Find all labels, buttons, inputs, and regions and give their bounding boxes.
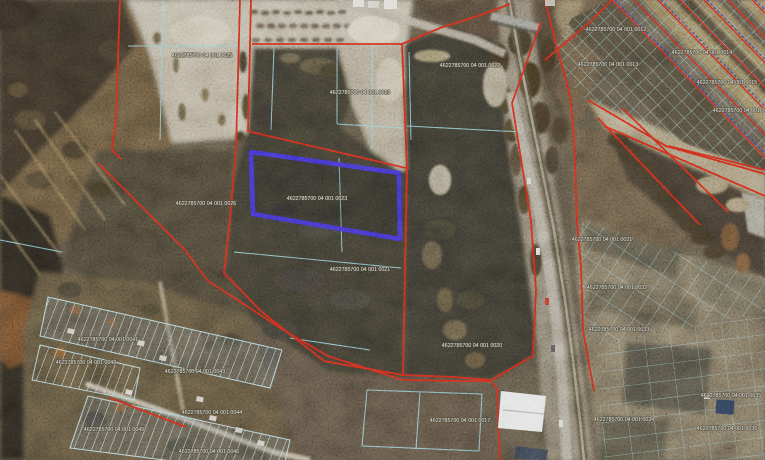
svg-text:4622785700 04 001 0016: 4622785700 04 001 0016	[713, 108, 765, 114]
svg-text:4622785700 04 001 0043: 4622785700 04 001 0043	[165, 369, 225, 375]
svg-text:4622785700 04 001 0019: 4622785700 04 001 0019	[330, 90, 390, 96]
svg-text:4622785700 04 001 0017: 4622785700 04 001 0017	[430, 418, 490, 424]
svg-text:4622785700 04 001 0034: 4622785700 04 001 0034	[594, 417, 654, 423]
svg-text:4622785700 04 001 0026: 4622785700 04 001 0026	[176, 201, 236, 207]
svg-text:4622785700 04 001 0020: 4622785700 04 001 0020	[442, 343, 502, 349]
svg-text:4622785700 04 001 0045: 4622785700 04 001 0045	[84, 427, 144, 433]
svg-text:4622785700 04 001 0036: 4622785700 04 001 0036	[697, 426, 757, 432]
svg-text:4622785700 04 001 0015: 4622785700 04 001 0015	[697, 80, 757, 86]
svg-text:4622785700 04 001 0046: 4622785700 04 001 0046	[179, 449, 239, 455]
svg-text:4622785700 04 001 0042: 4622785700 04 001 0042	[56, 360, 116, 366]
svg-text:4622785700 04 001 0032: 4622785700 04 001 0032	[587, 285, 647, 291]
svg-text:4622785700 04 001 0044: 4622785700 04 001 0044	[182, 410, 242, 416]
svg-text:4622785700 04 001 0035: 4622785700 04 001 0035	[701, 393, 761, 399]
svg-text:4622785700 04 001 0012: 4622785700 04 001 0012	[586, 27, 646, 33]
svg-text:4622785700 04 001 0014: 4622785700 04 001 0014	[672, 50, 732, 56]
svg-text:4622785700 04 001 0023: 4622785700 04 001 0023	[287, 196, 347, 202]
svg-text:4622785700 04 001 0021: 4622785700 04 001 0021	[330, 267, 390, 273]
svg-text:4622785700 04 001 0033: 4622785700 04 001 0033	[589, 327, 649, 333]
svg-text:4622785700 04 001 0041: 4622785700 04 001 0041	[78, 337, 138, 343]
svg-text:4622785700 04 001 0022: 4622785700 04 001 0022	[440, 63, 500, 69]
svg-text:4622785700 04 001 0031: 4622785700 04 001 0031	[572, 237, 632, 243]
svg-text:4622785700 04 001 0013: 4622785700 04 001 0013	[578, 62, 638, 68]
svg-text:4622785700 94 001 0025: 4622785700 94 001 0025	[172, 53, 232, 59]
